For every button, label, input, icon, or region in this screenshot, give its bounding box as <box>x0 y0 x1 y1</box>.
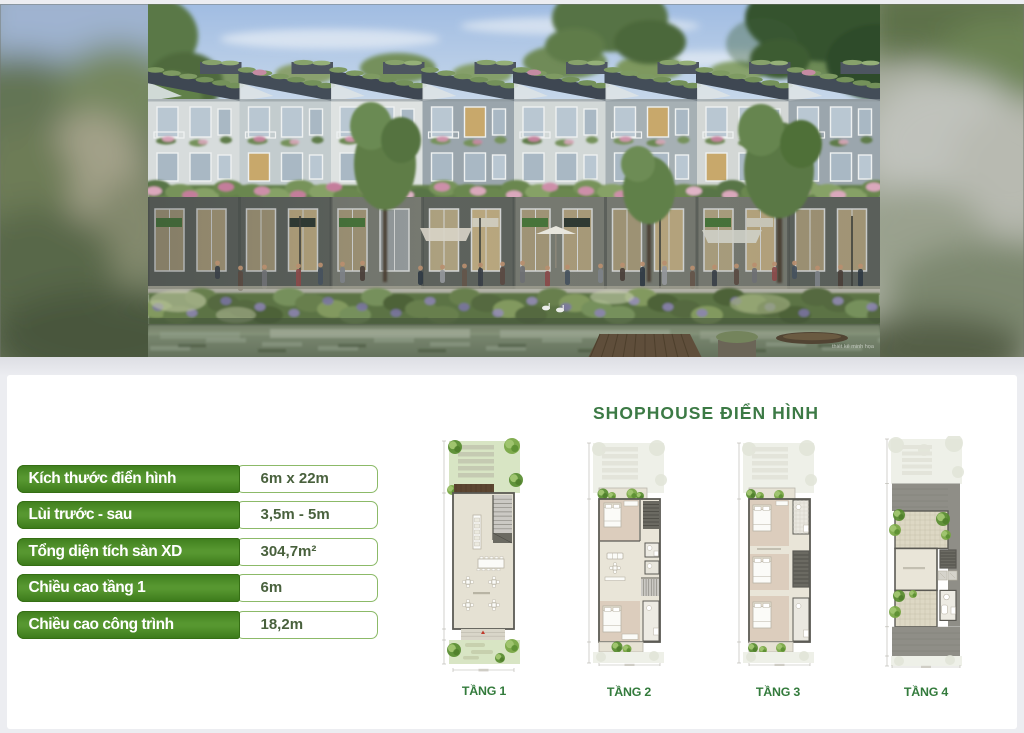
svg-text:thiết kế minh họa: thiết kế minh họa <box>832 344 875 350</box>
